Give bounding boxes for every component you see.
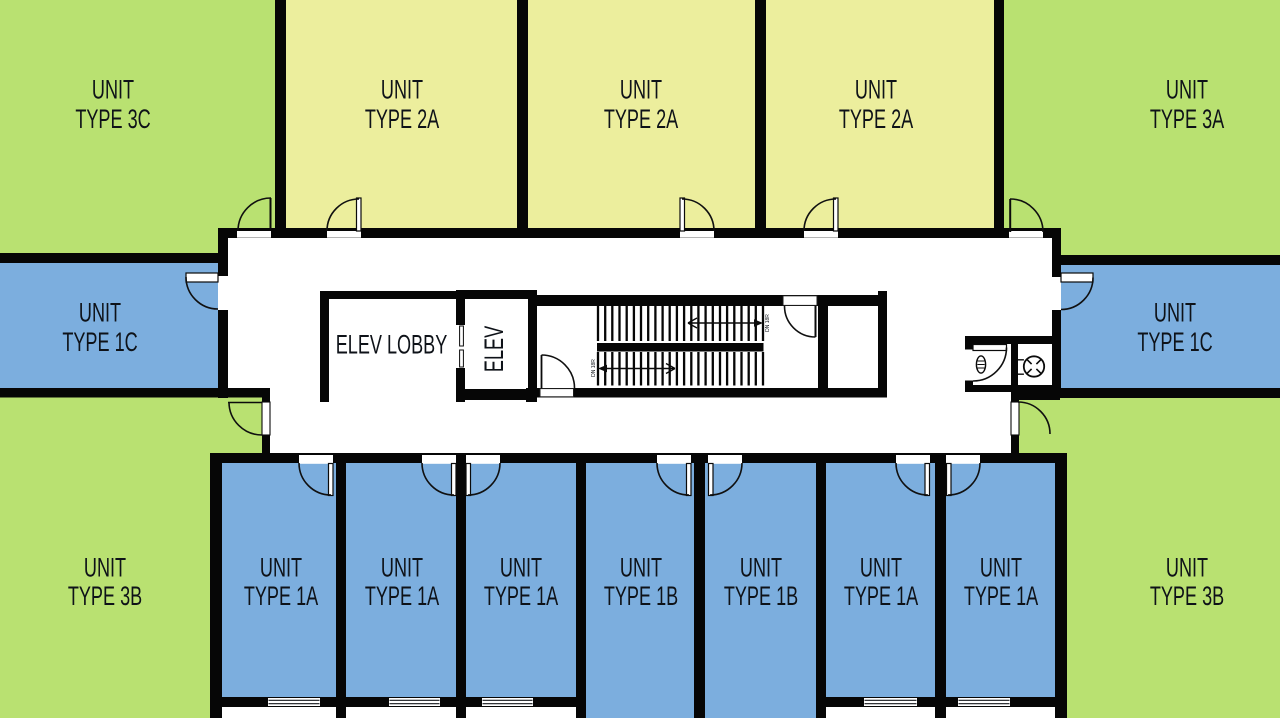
svg-text:UNIT: UNIT — [1166, 552, 1208, 583]
svg-text:UNIT: UNIT — [740, 552, 782, 583]
svg-text:TYPE 3A: TYPE 3A — [1150, 104, 1225, 135]
svg-text:UNIT: UNIT — [620, 552, 662, 583]
svg-text:TYPE 2A: TYPE 2A — [365, 104, 440, 135]
svg-text:TYPE 3C: TYPE 3C — [75, 104, 150, 135]
svg-text:TYPE 1A: TYPE 1A — [484, 580, 559, 611]
svg-text:UNIT: UNIT — [381, 74, 423, 105]
svg-text:UNIT: UNIT — [620, 74, 662, 105]
svg-text:DN 18R: DN 18R — [591, 359, 597, 377]
svg-text:TYPE 1C: TYPE 1C — [62, 326, 137, 357]
svg-text:TYPE 1A: TYPE 1A — [244, 580, 319, 611]
svg-text:ELEV: ELEV — [478, 325, 509, 372]
svg-text:DN 18R: DN 18R — [765, 314, 771, 332]
svg-text:TYPE 1A: TYPE 1A — [964, 580, 1039, 611]
svg-text:TYPE 1B: TYPE 1B — [724, 580, 798, 611]
svg-text:UNIT: UNIT — [980, 552, 1022, 583]
svg-text:ELEV LOBBY: ELEV LOBBY — [336, 329, 448, 360]
svg-text:TYPE 1C: TYPE 1C — [1137, 326, 1212, 357]
svg-text:UNIT: UNIT — [855, 74, 897, 105]
svg-text:TYPE 1B: TYPE 1B — [604, 580, 678, 611]
svg-text:UNIT: UNIT — [79, 297, 121, 328]
svg-text:UNIT: UNIT — [1166, 74, 1208, 105]
svg-text:UNIT: UNIT — [1154, 297, 1196, 328]
svg-text:TYPE 3B: TYPE 3B — [68, 580, 142, 611]
svg-text:UNIT: UNIT — [260, 552, 302, 583]
svg-text:TYPE 1A: TYPE 1A — [844, 580, 919, 611]
svg-text:UNIT: UNIT — [381, 552, 423, 583]
svg-text:UNIT: UNIT — [500, 552, 542, 583]
svg-text:UNIT: UNIT — [92, 74, 134, 105]
svg-text:TYPE 3B: TYPE 3B — [1150, 580, 1224, 611]
svg-text:UNIT: UNIT — [84, 552, 126, 583]
svg-text:TYPE 2A: TYPE 2A — [604, 104, 679, 135]
svg-text:TYPE 2A: TYPE 2A — [839, 104, 914, 135]
svg-text:TYPE 1A: TYPE 1A — [365, 580, 440, 611]
svg-text:UNIT: UNIT — [860, 552, 902, 583]
